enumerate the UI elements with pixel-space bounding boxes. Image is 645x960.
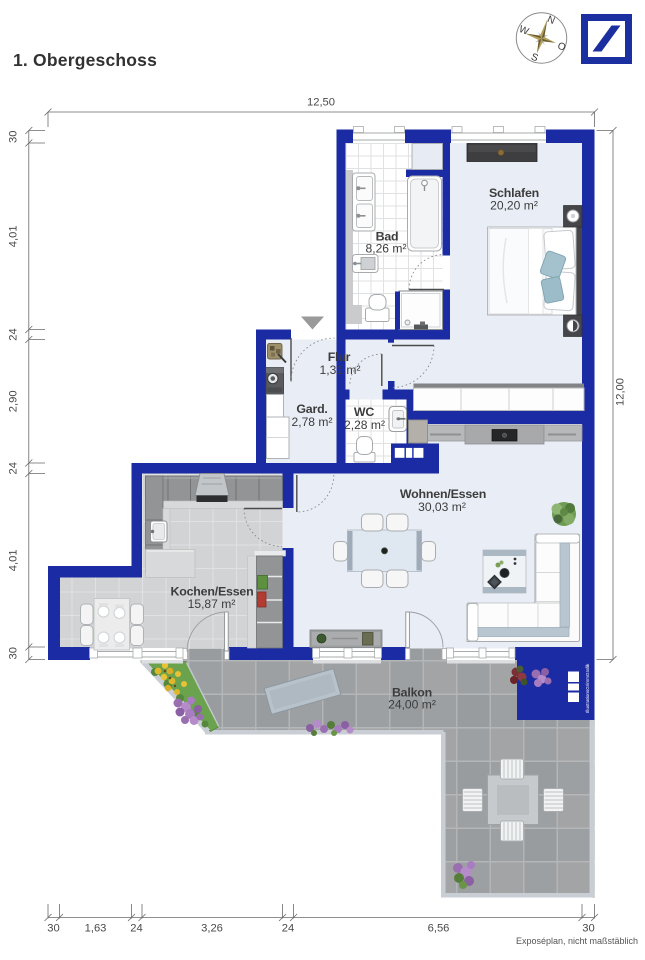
svg-text:1,31 m²: 1,31 m² (320, 363, 361, 377)
svg-text:24: 24 (8, 462, 20, 474)
svg-text:30: 30 (8, 131, 20, 143)
svg-text:30: 30 (8, 647, 20, 659)
svg-text:1. Obergeschoss: 1. Obergeschoss (13, 50, 157, 70)
svg-text:IllustrationsGrimmGrafik: IllustrationsGrimmGrafik (585, 663, 590, 713)
svg-text:24,00 m²: 24,00 m² (388, 698, 436, 712)
svg-text:Gard.: Gard. (296, 402, 327, 416)
svg-text:Flur: Flur (328, 350, 351, 364)
svg-text:4,01: 4,01 (8, 549, 20, 571)
svg-text:Wohnen/Essen: Wohnen/Essen (400, 487, 486, 501)
svg-text:12,00: 12,00 (615, 378, 627, 406)
svg-text:20,20 m²: 20,20 m² (490, 199, 538, 213)
svg-text:2,28 m²: 2,28 m² (344, 418, 385, 432)
svg-text:2,78 m²: 2,78 m² (292, 415, 333, 429)
svg-text:30,03 m²: 30,03 m² (418, 500, 466, 514)
svg-text:2,90: 2,90 (8, 390, 20, 412)
svg-text:Exposéplan, nicht maßstäblich: Exposéplan, nicht maßstäblich (516, 936, 638, 946)
svg-text:30: 30 (582, 923, 594, 935)
svg-text:15,87 m²: 15,87 m² (188, 597, 236, 611)
svg-text:6,56: 6,56 (428, 923, 450, 935)
svg-text:1,63: 1,63 (85, 923, 107, 935)
svg-text:3,26: 3,26 (201, 923, 223, 935)
svg-text:WC: WC (354, 405, 374, 419)
svg-text:30: 30 (47, 923, 59, 935)
svg-text:4,01: 4,01 (8, 225, 20, 247)
svg-text:12,50: 12,50 (307, 97, 335, 109)
svg-text:24: 24 (8, 328, 20, 340)
svg-text:24: 24 (282, 923, 294, 935)
svg-text:8,26 m²: 8,26 m² (366, 242, 407, 256)
svg-text:24: 24 (130, 923, 142, 935)
